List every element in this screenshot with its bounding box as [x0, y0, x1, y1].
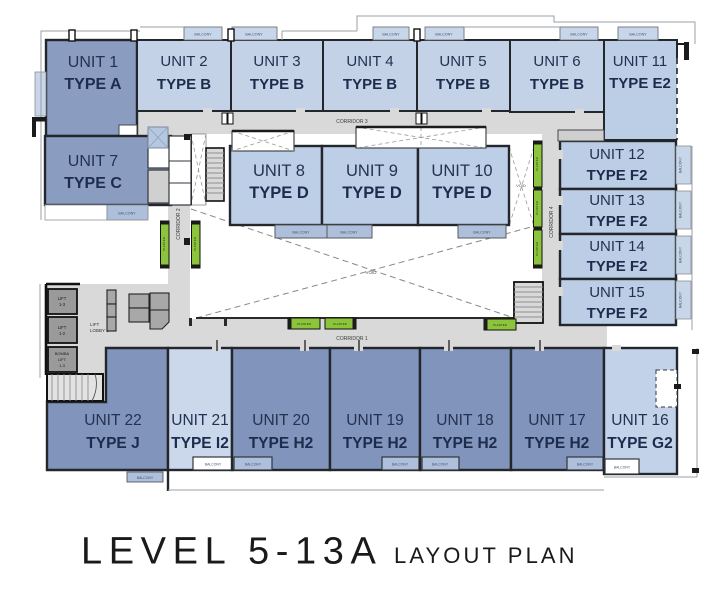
svg-text:UNIT 11: UNIT 11 — [613, 53, 667, 70]
svg-text:BALCONY: BALCONY — [577, 463, 594, 467]
svg-text:TYPE D: TYPE D — [249, 184, 309, 202]
svg-text:UNIT 16: UNIT 16 — [611, 412, 668, 429]
svg-text:TYPE H2: TYPE H2 — [343, 435, 408, 452]
svg-text:BALCONY: BALCONY — [435, 33, 453, 37]
svg-text:1-3: 1-3 — [59, 363, 66, 368]
svg-text:BALCONY: BALCONY — [382, 33, 400, 37]
svg-text:UNIT 19: UNIT 19 — [346, 412, 403, 429]
svg-text:LAYOUT PLAN: LAYOUT PLAN — [394, 543, 578, 568]
svg-text:PLANTER: PLANTER — [493, 323, 508, 327]
svg-text:TYPE B: TYPE B — [343, 76, 397, 93]
svg-text:TYPE B: TYPE B — [530, 76, 584, 93]
svg-text:UNIT 15: UNIT 15 — [589, 284, 645, 301]
svg-text:LIFT: LIFT — [58, 296, 67, 301]
svg-text:PLANTER: PLANTER — [535, 241, 539, 256]
svg-text:UNIT 8: UNIT 8 — [253, 162, 305, 180]
svg-text:1-3: 1-3 — [59, 302, 66, 307]
svg-text:BALCONY: BALCONY — [118, 212, 136, 216]
svg-text:PLANTER: PLANTER — [297, 322, 312, 326]
svg-text:BALCONY: BALCONY — [570, 33, 588, 37]
svg-text:BALCONY: BALCONY — [205, 463, 222, 467]
svg-text:LIFT: LIFT — [90, 322, 100, 327]
svg-text:TYPE B: TYPE B — [157, 76, 211, 93]
svg-text:PLANTER: PLANTER — [162, 236, 166, 251]
svg-text:LOBBY 1: LOBBY 1 — [90, 328, 109, 333]
svg-text:PLANTER: PLANTER — [535, 156, 539, 171]
svg-text:CORRIDOR 2: CORRIDOR 2 — [176, 208, 182, 240]
svg-text:CORRIDOR 4: CORRIDOR 4 — [549, 206, 555, 238]
svg-text:UNIT 18: UNIT 18 — [436, 412, 493, 429]
svg-text:LIFT: LIFT — [58, 357, 67, 362]
svg-text:TYPE A: TYPE A — [64, 76, 122, 93]
svg-text:UNIT 13: UNIT 13 — [589, 192, 645, 209]
svg-text:TYPE H2: TYPE H2 — [249, 435, 314, 452]
svg-text:UNIT 21: UNIT 21 — [171, 412, 228, 429]
svg-text:UNIT 5: UNIT 5 — [439, 53, 486, 70]
svg-text:TYPE D: TYPE D — [342, 184, 402, 202]
svg-text:BALCONY: BALCONY — [292, 231, 310, 235]
svg-text:PLANTER: PLANTER — [333, 322, 348, 326]
svg-text:TYPE B: TYPE B — [250, 76, 304, 93]
svg-text:TYPE B: TYPE B — [436, 76, 490, 93]
svg-text:LIFT: LIFT — [58, 325, 67, 330]
svg-text:UNIT 12: UNIT 12 — [589, 146, 645, 163]
svg-text:BALCONY: BALCONY — [679, 156, 683, 173]
svg-text:CORRIDOR 1: CORRIDOR 1 — [336, 336, 368, 342]
svg-text:BALCONY: BALCONY — [679, 201, 683, 218]
svg-text:TYPE E2: TYPE E2 — [609, 75, 671, 92]
svg-text:UNIT 17: UNIT 17 — [528, 412, 585, 429]
svg-text:UNIT 22: UNIT 22 — [84, 412, 141, 429]
svg-text:BOMBA: BOMBA — [55, 351, 70, 356]
svg-text:UNIT 14: UNIT 14 — [589, 238, 645, 255]
svg-text:BALCONY: BALCONY — [392, 463, 409, 467]
svg-text:TYPE I2: TYPE I2 — [171, 435, 229, 452]
svg-text:PLANTER: PLANTER — [193, 236, 197, 251]
svg-text:VOID: VOID — [516, 183, 526, 188]
svg-text:UNIT 7: UNIT 7 — [68, 153, 118, 170]
svg-text:BALCONY: BALCONY — [432, 463, 449, 467]
svg-text:TYPE J: TYPE J — [86, 435, 139, 452]
svg-text:TYPE C: TYPE C — [64, 175, 122, 192]
svg-text:BALCONY: BALCONY — [245, 33, 263, 37]
svg-text:TYPE F2: TYPE F2 — [587, 305, 648, 322]
svg-text:BALCONY: BALCONY — [340, 231, 358, 235]
svg-text:TYPE D: TYPE D — [432, 184, 492, 202]
svg-text:LEVEL 5-13A: LEVEL 5-13A — [81, 531, 382, 573]
svg-text:TYPE F2: TYPE F2 — [587, 167, 648, 184]
svg-text:BALCONY: BALCONY — [245, 463, 262, 467]
svg-text:CORRIDOR 3: CORRIDOR 3 — [336, 119, 368, 125]
svg-text:BALCONY: BALCONY — [473, 231, 491, 235]
svg-text:UNIT 2: UNIT 2 — [160, 53, 207, 70]
svg-text:VOID: VOID — [365, 270, 377, 275]
svg-text:UNIT 6: UNIT 6 — [533, 53, 580, 70]
svg-text:BALCONY: BALCONY — [629, 33, 647, 37]
svg-text:UNIT 3: UNIT 3 — [253, 53, 300, 70]
svg-text:PLANTER: PLANTER — [535, 200, 539, 215]
svg-text:UNIT 1: UNIT 1 — [68, 54, 118, 71]
svg-text:TYPE H2: TYPE H2 — [525, 435, 590, 452]
svg-text:UNIT 20: UNIT 20 — [252, 412, 310, 429]
svg-text:TYPE G2: TYPE G2 — [607, 435, 672, 452]
svg-text:TYPE F2: TYPE F2 — [587, 213, 648, 230]
svg-text:UNIT 9: UNIT 9 — [346, 162, 398, 180]
svg-text:BALCONY: BALCONY — [679, 291, 683, 308]
svg-text:BALCONY: BALCONY — [194, 33, 212, 37]
svg-text:BALCONY: BALCONY — [614, 466, 631, 470]
svg-text:TYPE F2: TYPE F2 — [587, 258, 648, 275]
svg-text:UNIT 4: UNIT 4 — [346, 53, 393, 70]
svg-text:BALCONY: BALCONY — [679, 246, 683, 263]
svg-text:BALCONY: BALCONY — [137, 476, 154, 480]
svg-text:TYPE H2: TYPE H2 — [433, 435, 498, 452]
svg-text:UNIT 10: UNIT 10 — [431, 162, 492, 180]
svg-text:1-2: 1-2 — [59, 331, 66, 336]
